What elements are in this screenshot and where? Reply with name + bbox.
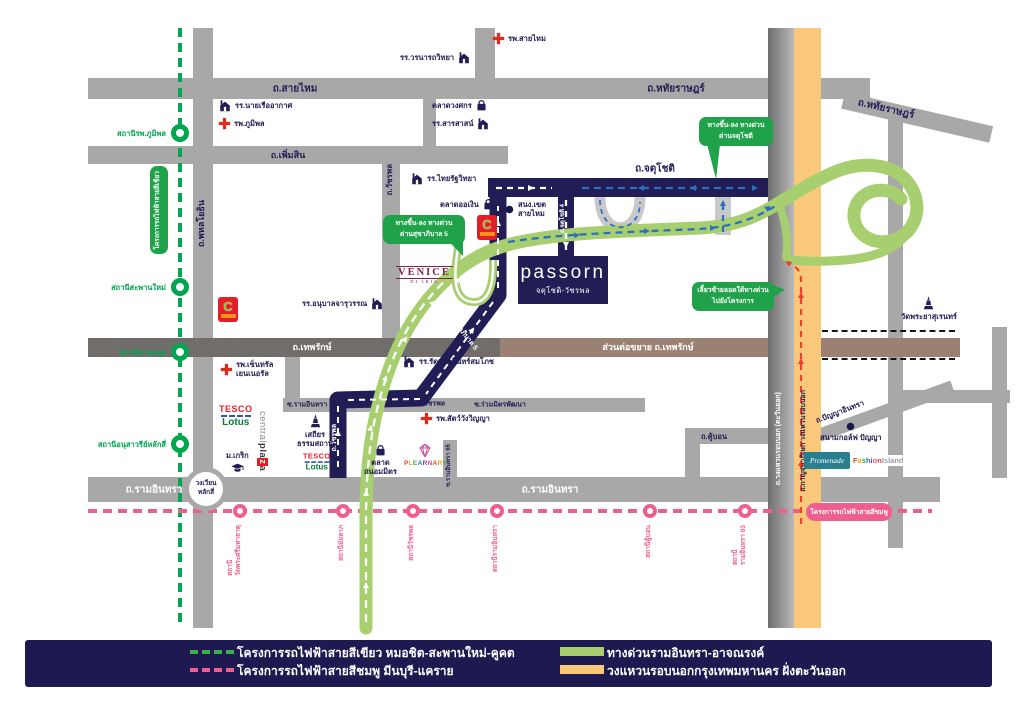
road-chatuchot [488, 178, 770, 197]
hospital-icon [420, 412, 433, 425]
road-label: ถ.คู้บอน [701, 431, 727, 443]
lak-si-roundabout: วงเวียน หลักสี่ [184, 467, 228, 511]
plearnary-crystal-icon [418, 444, 432, 461]
landmark-temple: วัดพระยาสุเรนทร์ [901, 296, 957, 321]
landmark-school: รร.ไทยรัฐวิทยา [410, 172, 476, 186]
pink-station-label: สถานีรามอินทรา 83 [732, 525, 748, 565]
legend-label: ทางด่วนรามอินทรา-อาจณรงค์ [607, 644, 764, 663]
road-label-vertical: ถ.กาญจนาภิเษก วงแหวนรอบนอก [800, 390, 809, 492]
landmark-label: รร.อนุบาลจารุวรรณ [302, 299, 367, 308]
school-icon [370, 297, 384, 311]
centralplaza-logo: centralplaza [255, 411, 273, 471]
badge-tail [707, 144, 720, 179]
road-connector-39 [285, 353, 300, 403]
landmark-dot: สนามกอล์ฟ ปัญญา [820, 421, 882, 442]
green-line-project-badge: โครงการรถไฟฟ้าสายสีเขียว [150, 166, 168, 254]
school-icon [457, 51, 471, 65]
legend-green-dash-swatch [190, 650, 234, 654]
landmark-label: รร.วรนารถวิทยา [400, 53, 454, 62]
extension-dashed-top [822, 330, 955, 332]
temple-icon [922, 296, 935, 311]
hospital-icon [218, 117, 231, 130]
road-label-vertical: ถ.พหลโยธิน [196, 200, 207, 247]
green-station-label: สถานีสายหยุด [30, 347, 166, 359]
road-kubon-leg [685, 444, 700, 480]
landmark-hospital: รพ.สัตว์วังวิญญา [420, 412, 490, 425]
landmark-label: รร.ไทยรัฐวิทยา [427, 174, 476, 183]
pink-station-label: สถานีวัชรพล [408, 525, 416, 561]
landmark-label: รร.สารสาสน์ [432, 119, 473, 128]
road-soi-ramintra39 [283, 398, 645, 412]
landmark-school: รร.รัตนโกสินทร์สมโภช [402, 355, 494, 369]
fashion-island-name: Fashion [853, 456, 882, 465]
venice-name: VENICE [396, 266, 453, 279]
pink-line-station [738, 504, 752, 518]
plearnary-name: PLEARNARY [404, 461, 447, 468]
landmark-label: รร.รัตนโกสินทร์สมโภช [419, 357, 494, 366]
dot-icon [504, 204, 515, 215]
landmark-hospital: รพ.เซ็นทรัลเยนเนอรัล [220, 360, 273, 379]
centralplaza-z: z [257, 458, 268, 465]
bigc-logo: C [477, 215, 497, 240]
centralplaza-text: pla [257, 443, 268, 458]
road-label: แยกวัชรพล [411, 399, 445, 410]
market-icon [374, 444, 387, 457]
road-label: ถ.รามอินทรา [522, 483, 579, 498]
legend-label: โครงการรถไฟฟ้าสายสีชมพู มีนบุรี-แคราย [237, 662, 454, 681]
bigc-logo: C [218, 297, 238, 322]
road-label: ซ.รามอินทรา 39 [287, 400, 337, 411]
green-line-station [171, 278, 189, 296]
road-label: ถ.เพิ่มสิน [271, 148, 306, 162]
landmark-temple: เสถียรธรรมสถาน [297, 414, 333, 449]
tesco-label: TESCO [219, 405, 253, 414]
roundabout-label: หลักสี่ [198, 489, 214, 498]
landmark-school: รร.สารสาสน์ [432, 117, 490, 131]
green-station-label: สถานีอนุสาวรีย์หลักสี่ [30, 439, 166, 451]
venice-tagline: DI IRIS [396, 279, 453, 284]
landmark-market: ตลาดวงศกร [432, 99, 488, 112]
expressway-callout-badge: ทางขึ้น-ลง ทางด่วนด่านสุขาภิบาล 5 [383, 215, 465, 244]
road-label: ถ.เทพรักษ์ [292, 340, 331, 354]
plearnary-logo: PLEARNARY [404, 444, 447, 468]
road-label: ถ.จตุโชติ [635, 162, 675, 177]
landmark-market: ตลาดถนอมมิตร [364, 444, 397, 477]
legend-orange-bar-swatch [560, 665, 604, 674]
promenade-logo: Promenade [804, 452, 850, 469]
market-icon [475, 99, 488, 112]
promenade-name: Promenade [810, 456, 844, 465]
landmark-label: ตลาดถนอมมิตร [364, 458, 397, 477]
road-label: ถ.รามอินทรา [126, 483, 183, 498]
bigc-strip [221, 314, 236, 318]
landmark-label: เสถียรธรรมสถาน [297, 430, 333, 449]
school-icon [402, 355, 416, 369]
road-kanchanaphisek [794, 28, 821, 628]
centralplaza-text: a [257, 466, 268, 472]
green-line-station [171, 124, 189, 142]
landmark-hospital: รพ.สายไหม [492, 32, 546, 45]
market-icon [482, 198, 495, 211]
school-icon [218, 99, 232, 113]
fashion-island-logo: FashionIsland [851, 455, 906, 466]
bigc-letter: C [223, 301, 232, 312]
road-label: ส่วนต่อขยาย ถ.เทพรักษ์ [602, 340, 693, 354]
fashion-island-name2: Island [882, 456, 904, 465]
road-phahonyothin [193, 28, 213, 628]
landmark-label: ม.เกริก [226, 451, 249, 460]
landmark-dot: สนง.เขตสายไหม [504, 200, 546, 219]
green-station-label: สถานีรพ.ภูมิพล [30, 128, 166, 140]
hospital-icon [220, 363, 233, 376]
temple-icon [309, 414, 322, 429]
hospital-icon [492, 32, 505, 45]
road-thepharak-extension [500, 338, 960, 357]
landmark-label: ตลาดวงศกร [432, 101, 472, 110]
centralplaza-text: central [257, 411, 268, 443]
landmark-school: รร.วรนารถวิทยา [400, 51, 471, 65]
road-label-vertical: ถ.จตุโชติ 4 [560, 204, 568, 233]
landmark-label: สนามกอล์ฟ ปัญญา [820, 433, 882, 442]
road-far-right-vertical [992, 327, 1007, 478]
landmark-market: ตลาดออเงิน [440, 198, 495, 211]
landmark-label: วัดพระยาสุเรนทร์ [901, 312, 957, 321]
road-label: ถ.สายไหม [273, 82, 318, 97]
landmark-label: รร.นายเรืออากาศ [235, 101, 292, 110]
pink-station-label: สถานีคู้บอน [645, 525, 653, 558]
landmark-label: รพ.ภูมิพล [234, 119, 264, 128]
venice-logo: VENICE DI IRIS [396, 266, 453, 284]
road-label-vertical: ซ.รามอินทรา 65 [446, 444, 454, 487]
road-outer-ring-frontage [768, 28, 794, 628]
legend-green-bar-swatch [560, 647, 604, 656]
extension-dashed-bottom [822, 358, 955, 360]
tesco-lotus-logo: TESCO Lotus [303, 453, 330, 473]
passorn-project-logo: passorn จตุโชติ-วัชรพล [518, 256, 608, 304]
tesco-lotus-logo: TESCO Lotus [219, 405, 253, 429]
green-line-rail [178, 28, 182, 628]
school-icon [410, 172, 424, 186]
green-line-badge-label: โครงการรถไฟฟ้าสายสีเขียว [154, 171, 162, 250]
legend-pink-dash-swatch [190, 668, 234, 672]
bigc-strip [480, 232, 495, 236]
pink-station-label: สถานีรามอินทรา [492, 525, 500, 572]
pink-line-station [643, 504, 657, 518]
expressway-callout-badge: ทางขึ้น-ลง ทางด่วนด่านจตุโชติ [699, 117, 773, 146]
pink-line-station [490, 504, 504, 518]
pink-line-station [233, 504, 247, 518]
green-station-label: สถานีสะพานใหม่ [30, 282, 166, 294]
tesco-label: TESCO [303, 453, 330, 461]
road-right-vertical [888, 112, 903, 478]
landmark-label: สนง.เขตสายไหม [518, 200, 546, 219]
legend-label: วงแหวนรอบนอกกรุงเทพมหานคร ฝั่งตะวันออก [607, 662, 846, 681]
map-legend: โครงการรถไฟฟ้าสายสีเขียว หมอชิต-สะพานใหม… [25, 640, 992, 687]
lotus-label: Lotus [303, 464, 330, 473]
landmark-label: รพ.สัตว์วังวิญญา [436, 414, 490, 423]
dot-icon [845, 421, 856, 432]
pink-station-label: สถานีวัดพระศรีมหาธาตุ [227, 525, 243, 576]
landmark-school: รร.อนุบาลจารุวรรณ [302, 297, 384, 311]
legend-label: โครงการรถไฟฟ้าสายสีเขียว หมอชิต-สะพานใหม… [237, 644, 515, 663]
university-icon [230, 461, 245, 475]
landmark-university: ม.เกริก [226, 451, 249, 475]
road-label: ซ.ร่วมมิตรพัฒนา [474, 400, 526, 411]
road-kubon [685, 428, 780, 444]
landmark-school: รร.นายเรืออากาศ [218, 99, 292, 113]
landmark-label: ตลาดออเงิน [440, 200, 479, 209]
landmark-hospital: รพ.ภูมิพล [218, 117, 264, 130]
pink-line-station [406, 504, 420, 518]
bigc-letter: C [482, 219, 491, 230]
pink-line-project-badge: โครงการรถไฟฟ้าสายสีชมพู [806, 503, 892, 521]
landmark-label: รพ.สายไหม [508, 34, 546, 43]
road-label: ถ.หทัยราษฎร์ [647, 82, 705, 97]
location-map: วงเวียน หลักสี่ [0, 0, 1024, 709]
passorn-brand: passorn [520, 263, 605, 282]
pink-station-label: สถานีมัยลาภ [338, 525, 346, 561]
lotus-label: Lotus [219, 418, 253, 429]
road-label-vertical: ถ.วัชรพล [385, 164, 395, 195]
pink-line-station [336, 504, 350, 518]
green-line-station [171, 343, 189, 361]
badge-tail [448, 242, 463, 256]
landmark-label: รพ.เซ็นทรัลเยนเนอรัล [236, 360, 273, 379]
road-label-vertical: ถ.วงแหวนรอบนอก (ตะวันออก) [775, 392, 784, 485]
passorn-subtitle: จตุโชติ-วัชรพล [536, 285, 590, 297]
school-icon [476, 117, 490, 131]
expressway-callout-badge: เลี้ยวซ้ายลอดใต้ทางด่วนไปยังโครงการ [692, 282, 774, 311]
pink-badge-label: โครงการรถไฟฟ้าสายสีชมพู [810, 507, 888, 517]
green-line-station [171, 435, 189, 453]
roundabout-label: วงเวียน [196, 480, 217, 489]
